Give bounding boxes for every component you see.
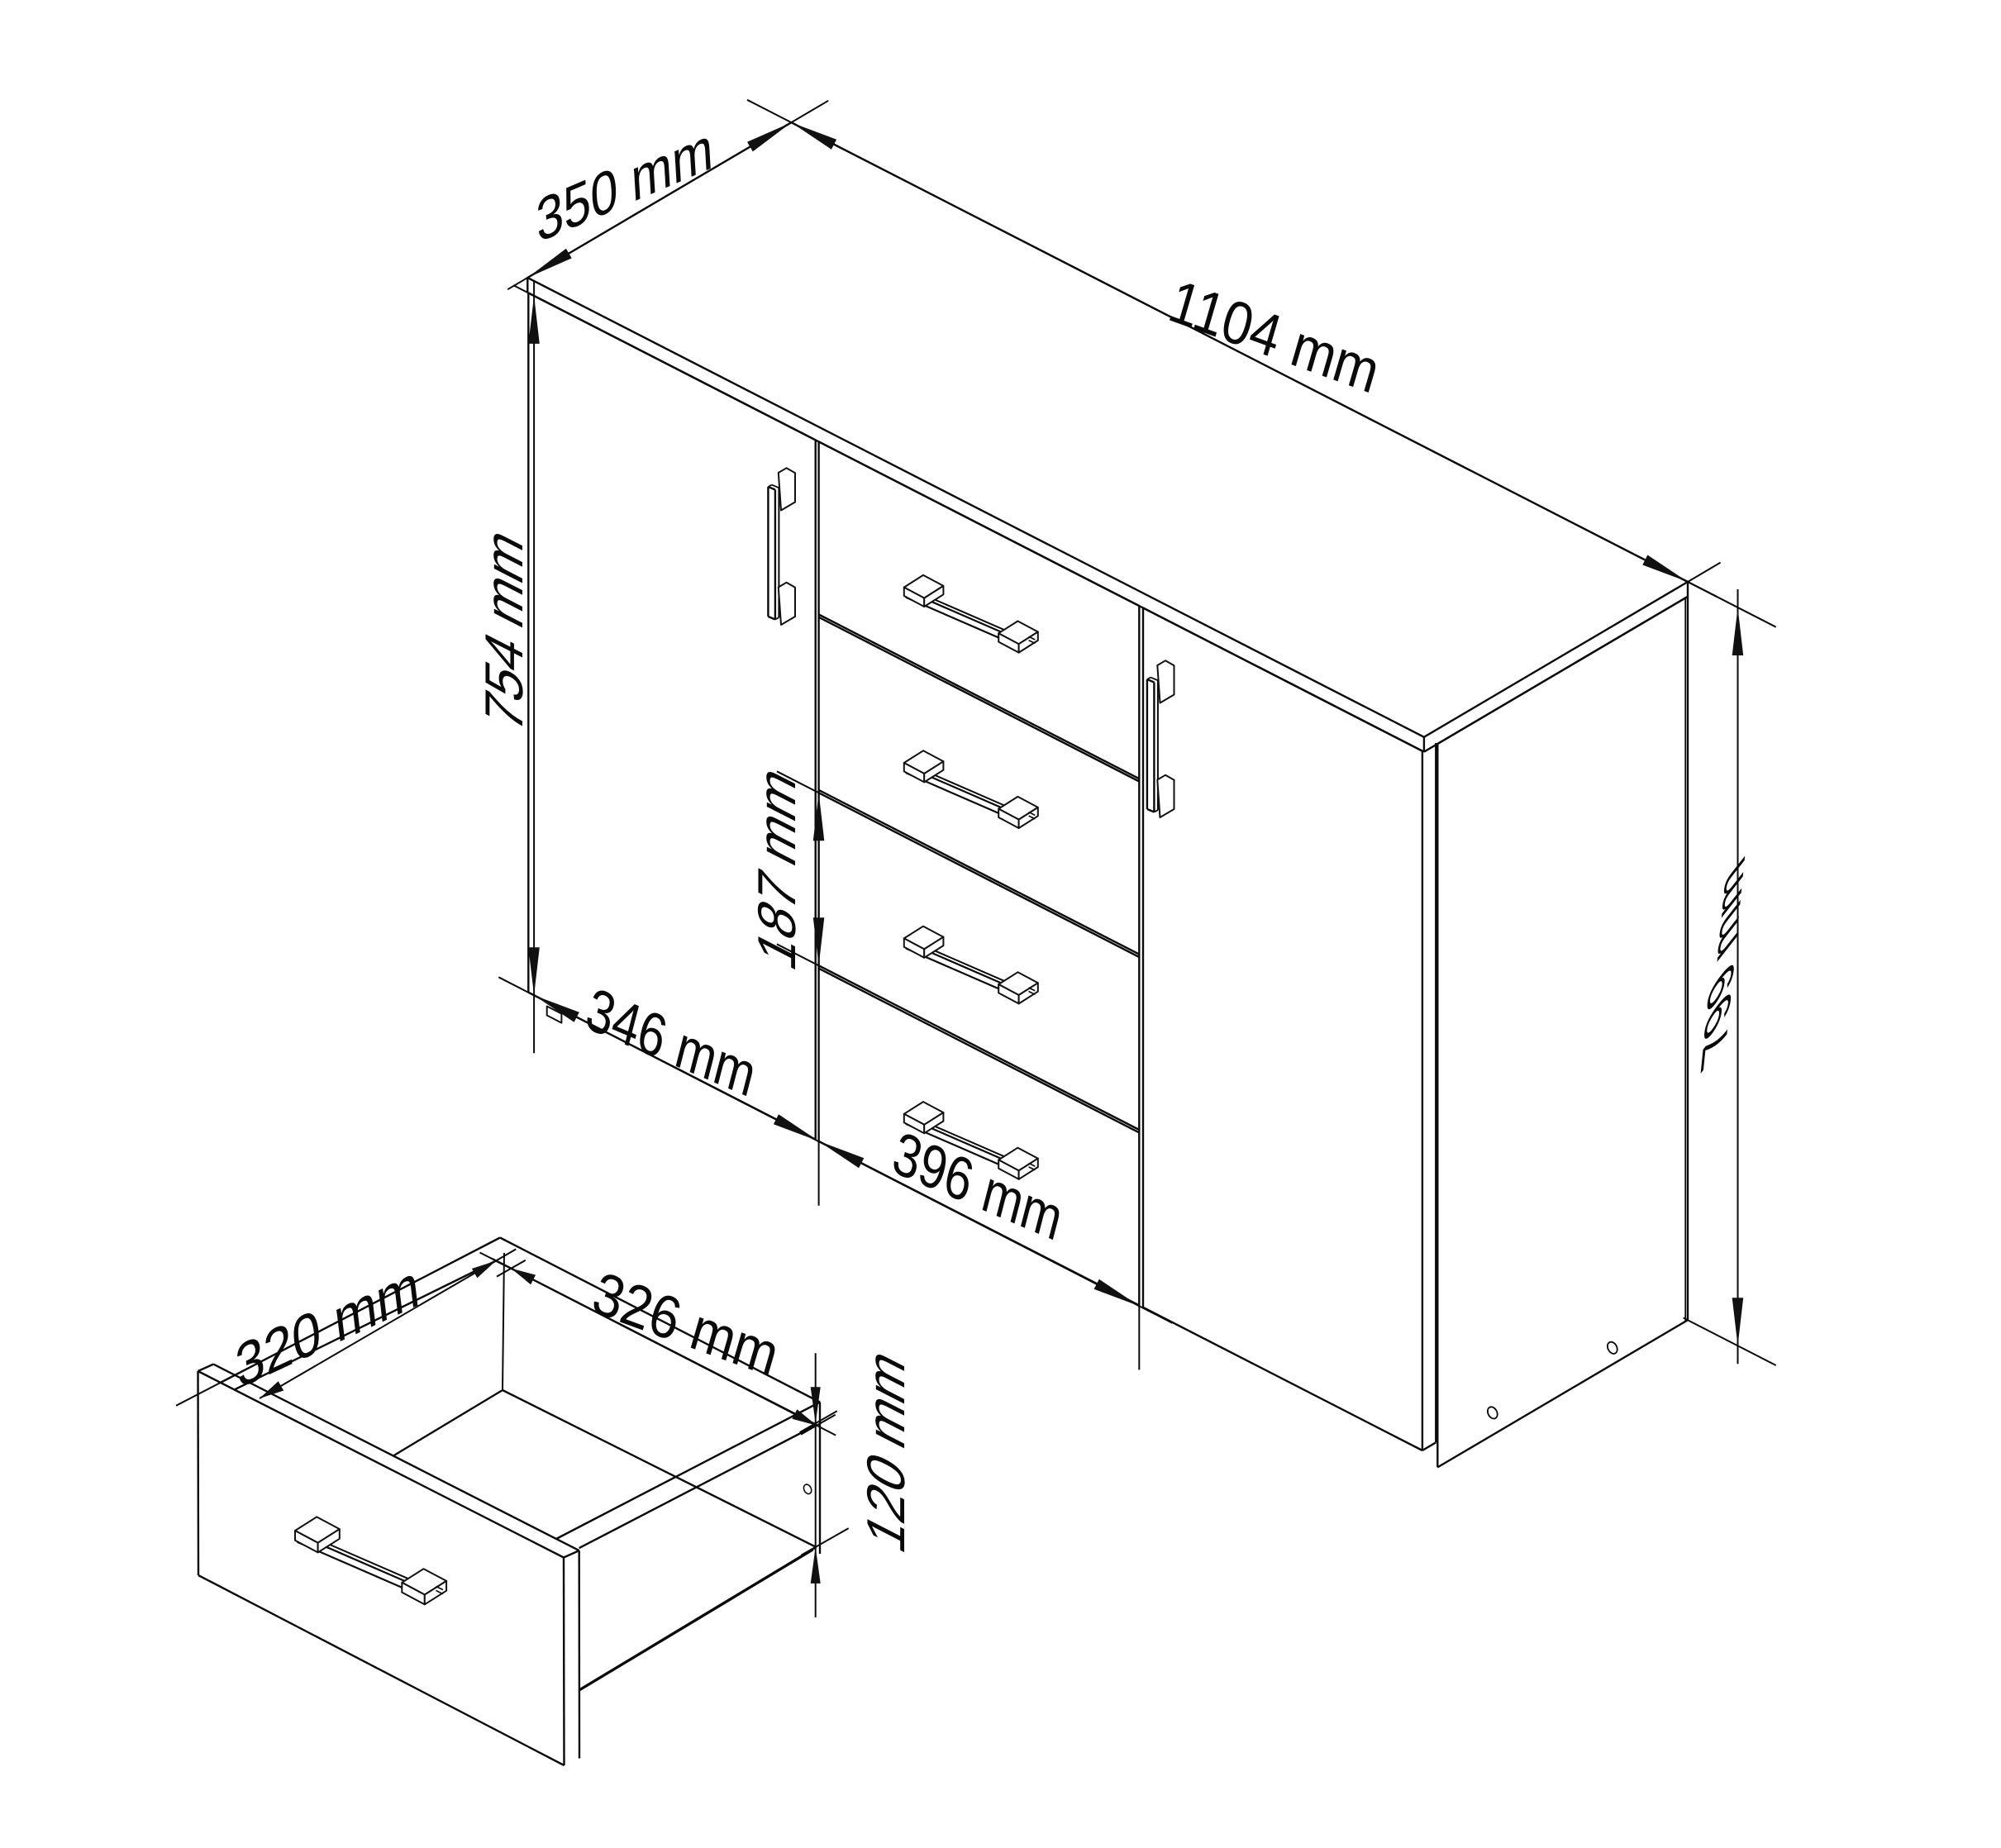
svg-text:754 mm: 754 mm <box>474 517 534 741</box>
svg-text:120 mm: 120 mm <box>856 1338 916 1562</box>
svg-text:187 mm: 187 mm <box>747 755 807 979</box>
